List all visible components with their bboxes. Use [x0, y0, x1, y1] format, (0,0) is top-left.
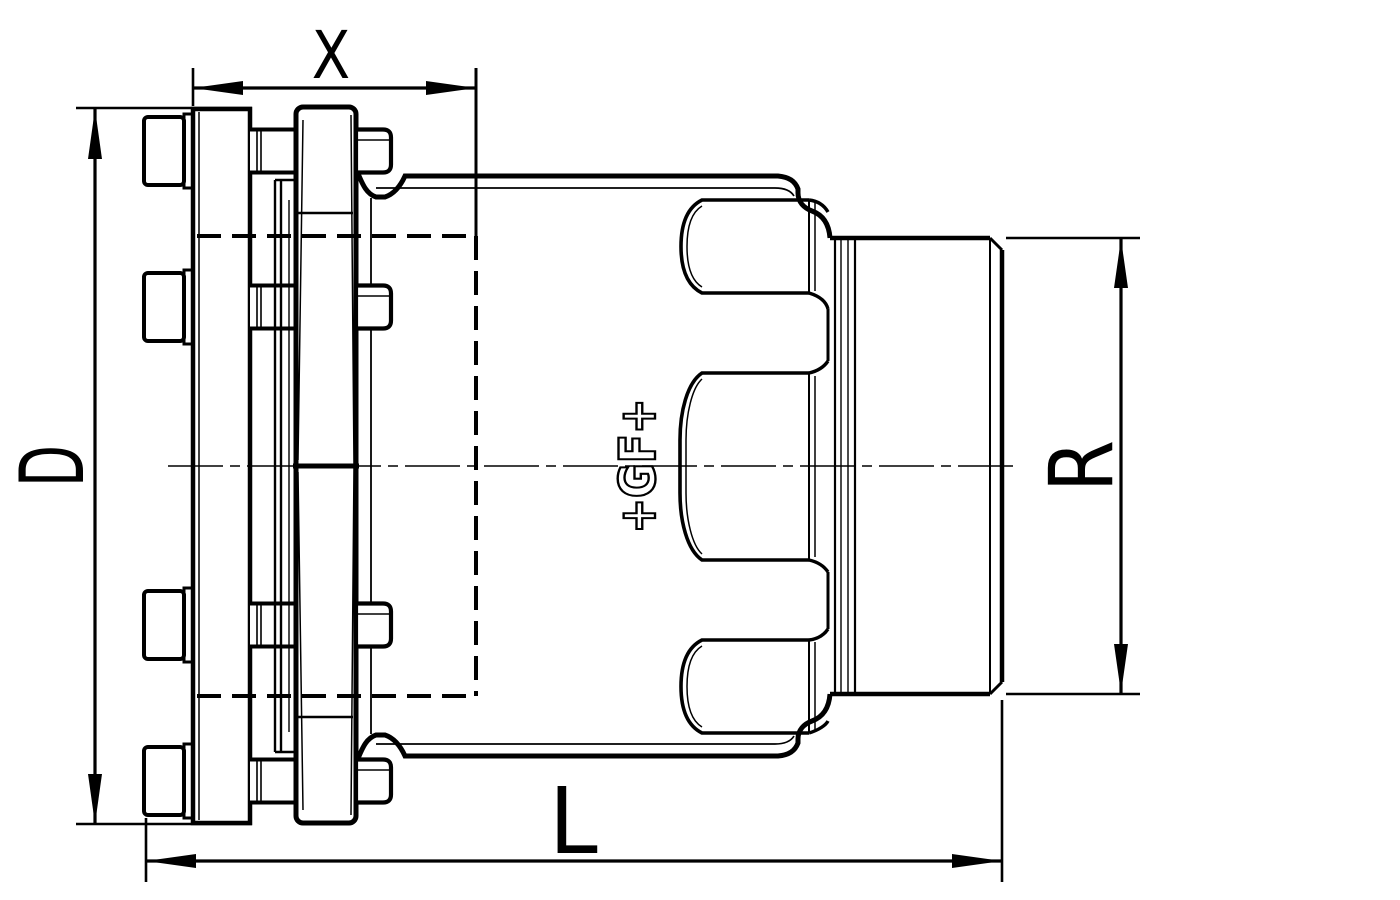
bolt-head-row2: [144, 270, 193, 344]
bolt-shaft-row4: [250, 760, 296, 803]
x-arrow-left: [193, 81, 243, 95]
hex-head: [144, 273, 184, 341]
coupling-technical-drawing: +GF+ X D R L: [0, 0, 1400, 900]
hex-head: [144, 117, 184, 185]
bolt-lug-row2: [356, 286, 391, 329]
flange-assembly: [144, 107, 391, 823]
bolt-lug-row4: [356, 760, 391, 803]
bolt-lug-row1: [356, 130, 391, 173]
gf-logo-text: +GF+: [609, 398, 667, 533]
lug-outline: [356, 604, 391, 647]
lug-outline: [356, 760, 391, 803]
lug-outline: [356, 130, 391, 173]
r-arrow-top: [1114, 239, 1128, 288]
clamp-ring: [293, 107, 359, 823]
hex-head: [144, 747, 184, 815]
bolt-lug-row3: [356, 604, 391, 647]
l-dimension-label: L: [549, 769, 598, 876]
d-dimension-label: D: [2, 445, 104, 487]
hex-head: [144, 591, 184, 659]
bolt-shaft-row1: [250, 130, 296, 173]
r-arrow-bottom: [1114, 644, 1128, 693]
l-arrow-left: [146, 854, 196, 868]
x-dimension-label: X: [312, 18, 350, 95]
drawing-canvas: +GF+ X D R L: [0, 0, 1400, 900]
dimension-r: R: [1006, 238, 1140, 694]
d-arrow-top: [88, 109, 102, 159]
d-arrow-bottom: [88, 774, 102, 824]
l-arrow-right: [952, 854, 1002, 868]
lug-outline: [356, 286, 391, 329]
x-arrow-right: [426, 81, 476, 95]
bolt-head-row4: [144, 744, 193, 818]
bolt-head-row1: [144, 114, 193, 188]
bolt-head-row3: [144, 588, 193, 662]
r-dimension-label: R: [1031, 440, 1133, 492]
